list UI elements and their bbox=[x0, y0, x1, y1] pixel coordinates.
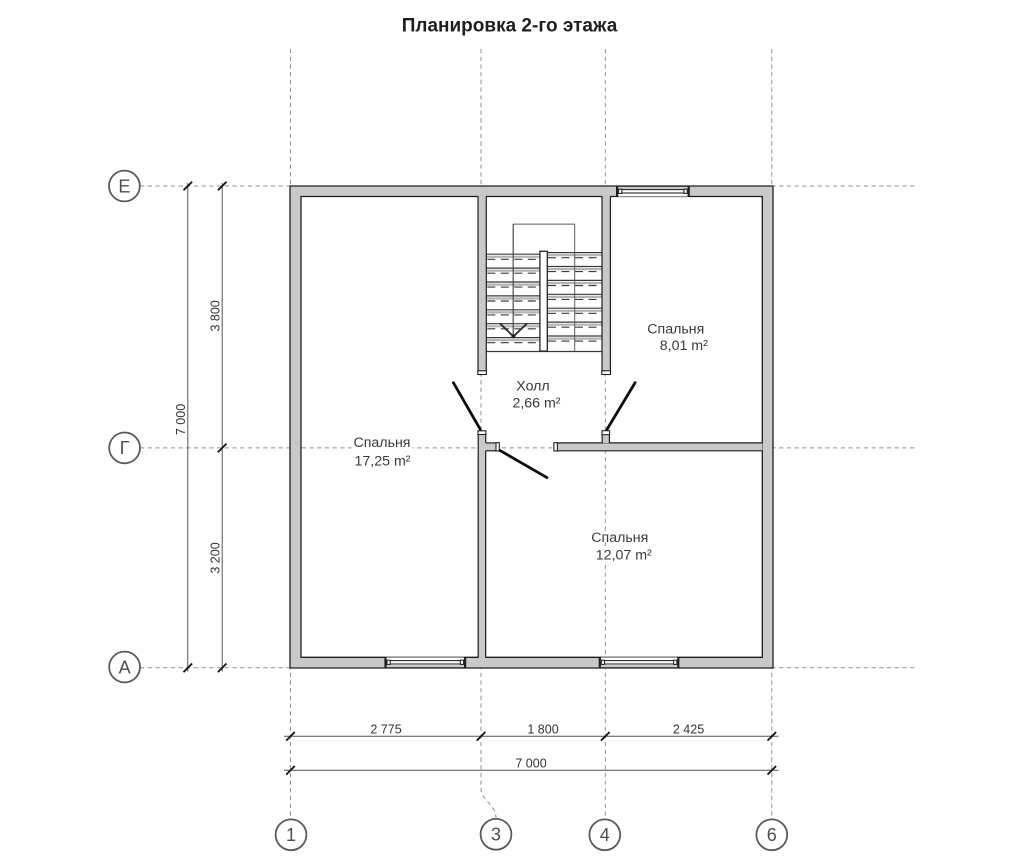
svg-text:А: А bbox=[119, 657, 131, 677]
svg-text:Спальня: Спальня bbox=[647, 321, 704, 337]
svg-text:12,07 m²: 12,07 m² bbox=[596, 548, 652, 564]
svg-text:2 775: 2 775 bbox=[370, 722, 401, 736]
svg-text:Планировка 2-го этажа: Планировка 2-го этажа bbox=[402, 16, 618, 37]
svg-text:8,01 m²: 8,01 m² bbox=[660, 338, 708, 354]
svg-text:3: 3 bbox=[491, 825, 501, 845]
svg-text:4: 4 bbox=[600, 825, 610, 845]
svg-text:3 800: 3 800 bbox=[208, 300, 222, 331]
svg-text:17,25 m²: 17,25 m² bbox=[355, 453, 411, 469]
svg-text:2 425: 2 425 bbox=[673, 722, 704, 736]
svg-text:1 800: 1 800 bbox=[527, 722, 558, 736]
svg-text:7 000: 7 000 bbox=[515, 756, 546, 770]
svg-text:Г: Г bbox=[120, 438, 130, 458]
svg-text:6: 6 bbox=[767, 825, 777, 845]
svg-text:Е: Е bbox=[118, 176, 130, 196]
svg-text:3 200: 3 200 bbox=[208, 542, 222, 573]
svg-text:2,66 m²: 2,66 m² bbox=[512, 396, 560, 412]
svg-text:Холл: Холл bbox=[516, 378, 549, 394]
svg-text:7 000: 7 000 bbox=[174, 404, 188, 435]
svg-text:1: 1 bbox=[286, 825, 296, 845]
svg-text:Спальня: Спальня bbox=[353, 435, 410, 451]
svg-text:Спальня: Спальня bbox=[591, 530, 648, 546]
